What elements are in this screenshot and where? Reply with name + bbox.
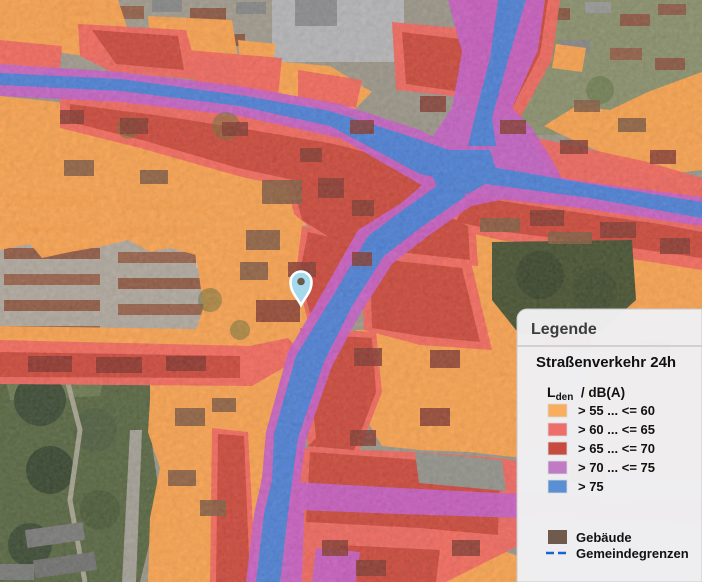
svg-text:Gemeindegrenzen: Gemeindegrenzen <box>576 546 689 561</box>
svg-text:> 55 ... <= 60: > 55 ... <= 60 <box>578 403 655 418</box>
svg-text:Legende: Legende <box>531 321 597 338</box>
svg-text:> 65 ... <= 70: > 65 ... <= 70 <box>578 441 655 456</box>
svg-text:> 70 ... <= 75: > 70 ... <= 75 <box>578 460 655 475</box>
svg-text:> 75: > 75 <box>578 479 604 494</box>
svg-text:> 60 ... <= 65: > 60 ... <= 65 <box>578 422 655 437</box>
svg-text:Gebäude: Gebäude <box>576 530 632 545</box>
svg-text:Straßenverkehr 24h: Straßenverkehr 24h <box>536 354 676 371</box>
